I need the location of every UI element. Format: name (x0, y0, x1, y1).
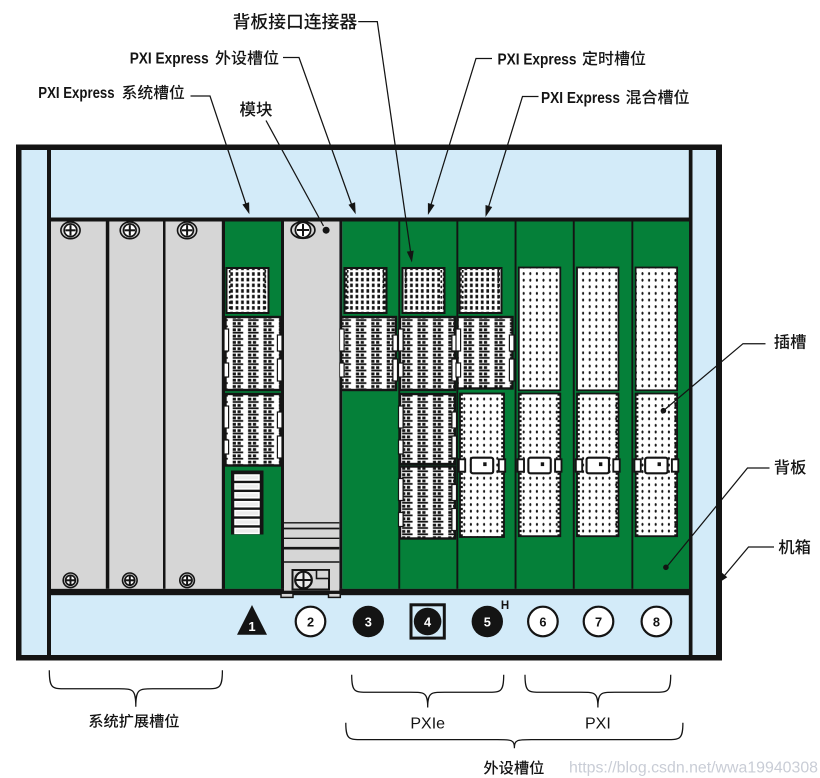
svg-text:H: H (501, 600, 509, 612)
svg-text:3: 3 (365, 614, 372, 629)
svg-text:PXI Express: PXI Express (130, 51, 209, 68)
svg-text:https://blog.csdn.net/wwa19940: https://blog.csdn.net/wwa19940308 (569, 759, 818, 776)
svg-text:5: 5 (484, 614, 491, 629)
svg-text:PXI Express: PXI Express (541, 90, 620, 107)
svg-text:2: 2 (307, 614, 314, 629)
svg-text:PXI: PXI (585, 716, 611, 733)
svg-text:8: 8 (653, 614, 660, 629)
svg-text:4: 4 (424, 614, 432, 629)
svg-text:6: 6 (539, 614, 546, 629)
svg-text:1: 1 (248, 619, 255, 634)
svg-text:PXIe: PXIe (410, 716, 445, 733)
svg-text:PXI Express: PXI Express (38, 85, 114, 102)
svg-text:7: 7 (595, 614, 602, 629)
svg-text:PXI Express: PXI Express (498, 51, 577, 68)
